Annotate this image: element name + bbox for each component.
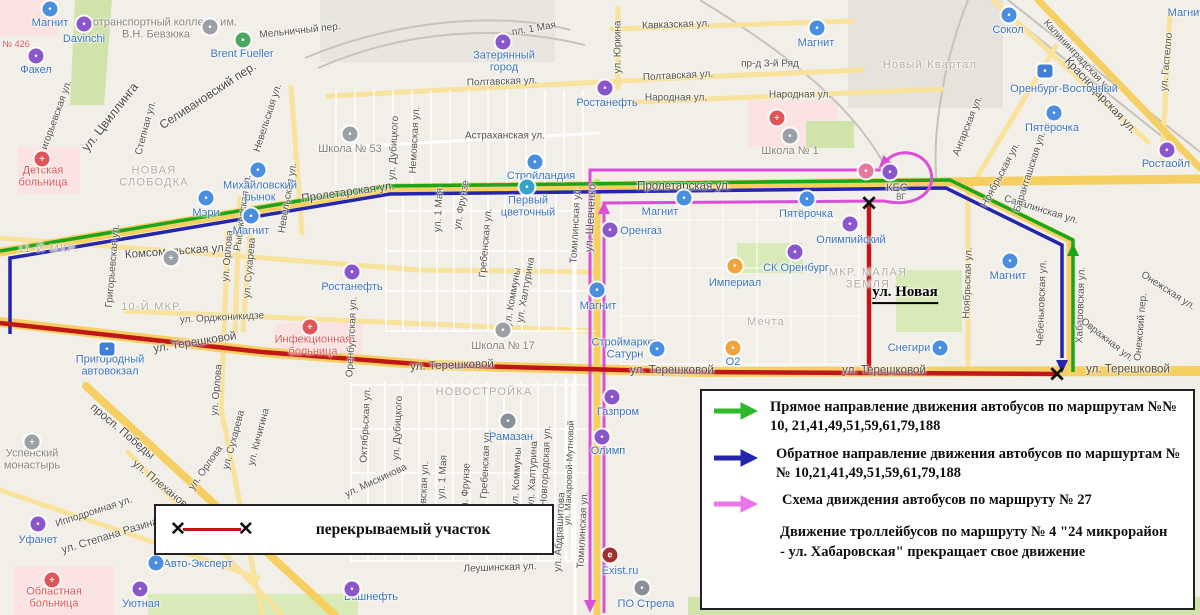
poi-icon: • — [203, 20, 218, 35]
poi-icon: • — [800, 192, 815, 207]
poi-icon: • — [677, 191, 692, 206]
magenta-arrow-icon — [712, 494, 758, 514]
poi-icon: • — [77, 17, 92, 32]
legend-route27-label: Схема движдения автобусов по маршруту № … — [782, 491, 1092, 510]
route-scheme-map: ✕✕ Мельничный пер.пл. 1 МаяКавказская ул… — [0, 0, 1200, 615]
poi-icon: • — [1047, 106, 1062, 121]
blue-arrow-icon — [712, 448, 758, 468]
poi-icon: • — [149, 556, 164, 571]
closed-section-legend: ✕ ✕ перекрываемый участок — [154, 504, 554, 555]
poi-icon: e — [603, 548, 618, 563]
closed-section-symbol: ✕ ✕ — [170, 520, 254, 539]
red-line-icon — [183, 528, 241, 531]
legend-trolleybus-note: Движение троллейбусов по маршруту № 4 "2… — [780, 523, 1175, 562]
poi-icon: • — [1002, 8, 1017, 23]
poi-icon: • — [236, 33, 251, 48]
poi-icon: • — [859, 164, 874, 179]
x-mark-icon: ✕ — [238, 520, 254, 539]
poi-icon: + — [164, 251, 179, 266]
poi-icon: • — [251, 163, 266, 178]
poi-icon: + — [770, 111, 785, 126]
poi-icon: • — [650, 342, 665, 357]
poi-icon: • — [635, 581, 650, 596]
poi-icon: • — [100, 343, 115, 356]
poi-icon: • — [1003, 254, 1018, 269]
poi-icon: • — [496, 323, 511, 338]
poi-icon: • — [345, 265, 360, 280]
poi-icon: + — [303, 320, 318, 335]
poi-icon: • — [345, 582, 360, 597]
legend-row-return: Обратное направление движения автобусов … — [712, 445, 1183, 483]
poi-icon: • — [343, 127, 358, 142]
poi-icon: • — [501, 414, 516, 429]
poi-icon: • — [788, 245, 803, 260]
poi-icon: • — [528, 155, 543, 170]
poi-icon: • — [199, 191, 214, 206]
poi-icon: • — [590, 283, 605, 298]
legend-row-direct: Прямое направление движения автобусов по… — [712, 398, 1183, 436]
closed-section-label: перекрываемый участок — [316, 521, 491, 539]
routes-legend: Прямое направление движения автобусов по… — [700, 389, 1195, 610]
poi-icon: • — [244, 209, 259, 224]
poi-icon: • — [883, 165, 898, 180]
poi-icon: • — [595, 430, 610, 445]
poi-icon: • — [1038, 65, 1053, 78]
poi-icon: • — [43, 2, 58, 17]
legend-row-route27: Схема движдения автобусов по маршруту № … — [712, 491, 1183, 514]
poi-icon: • — [783, 129, 798, 144]
legend-return-label: Обратное направление движения автобусов … — [776, 445, 1183, 483]
poi-icon: • — [496, 35, 511, 50]
poi-icon: • — [1160, 143, 1175, 158]
poi-icon: • — [726, 341, 741, 356]
poi-icon: + — [45, 573, 60, 588]
poi-icon: • — [933, 341, 948, 356]
poi-icon: • — [29, 49, 44, 64]
poi-icon: • — [31, 517, 46, 532]
poi-icon: • — [605, 390, 620, 405]
poi-icon: • — [520, 180, 535, 195]
poi-icon: • — [728, 259, 743, 274]
poi-icon: + — [25, 435, 40, 450]
poi-icon: • — [598, 81, 613, 96]
poi-icon: • — [603, 223, 618, 238]
legend-direct-label: Прямое направление движения автобусов по… — [770, 398, 1183, 436]
green-arrow-icon — [712, 401, 758, 421]
poi-icon: + — [35, 152, 50, 167]
poi-icon: • — [843, 217, 858, 232]
poi-icon: • — [810, 21, 825, 36]
poi-icon: • — [133, 582, 148, 597]
